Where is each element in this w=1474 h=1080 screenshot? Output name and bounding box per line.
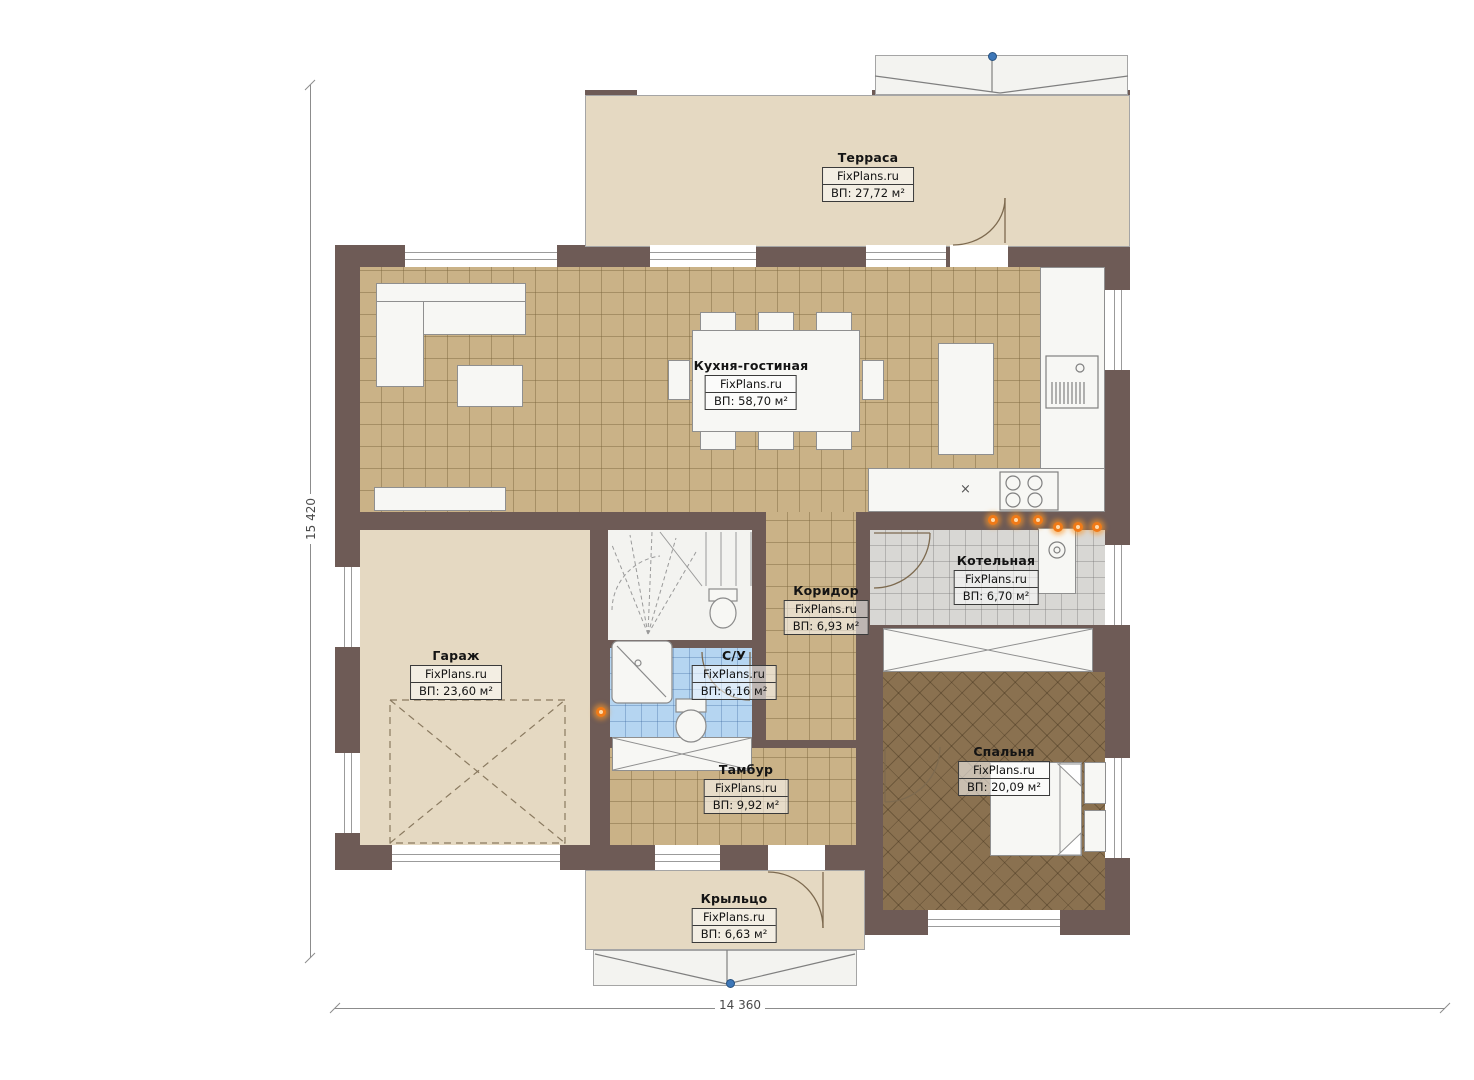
coffee-table [457,365,523,407]
brand-text: FixPlans.ru [823,168,913,185]
brand-text: FixPlans.ru [959,762,1049,779]
chair [816,312,852,332]
room-name: Спальня [958,744,1050,759]
kitchen-counter-bottom [868,468,1105,512]
brand-text: FixPlans.ru [955,571,1038,588]
room-info-box: FixPlans.ru ВП: 6,70 м² [954,570,1039,605]
sink-icon: × [960,482,971,497]
room-info-box: FixPlans.ru ВП: 6,63 м² [692,908,777,943]
room-info-box: FixPlans.ru ВП: 58,70 м² [705,375,797,410]
terrace-door-opening [950,245,1008,267]
chair [758,430,794,450]
room-name: С/У [692,648,777,663]
entrance-door-opening [768,845,825,870]
window [405,245,557,267]
tv-stand [374,487,506,511]
room-info-box: FixPlans.ru ВП: 9,92 м² [704,779,789,814]
room-label-vestibule: Тамбур FixPlans.ru ВП: 9,92 м² [704,762,789,814]
room-info-box: FixPlans.ru ВП: 20,09 м² [958,761,1050,796]
room-label-bathroom: С/У FixPlans.ru ВП: 6,16 м² [692,648,777,700]
brand-text: FixPlans.ru [693,666,776,683]
staircase-floor [608,530,752,640]
room-label-boiler: Котельная FixPlans.ru ВП: 6,70 м² [954,553,1039,605]
room-label-garage: Гараж FixPlans.ru ВП: 23,60 м² [410,648,502,700]
room-area: ВП: 6,93 м² [785,618,868,634]
brand-text: FixPlans.ru [693,909,776,926]
chair [758,312,794,332]
sofa-chaise [376,301,424,387]
window [866,245,946,267]
room-label-kitchen-living: Кухня-гостиная FixPlans.ru ВП: 58,70 м² [694,358,809,410]
chair [700,312,736,332]
room-name: Гараж [410,648,502,663]
room-area: ВП: 27,72 м² [823,185,913,201]
room-label-porch: Крыльцо FixPlans.ru ВП: 6,63 м² [692,891,777,943]
radiator-icon [1011,515,1021,525]
room-area: ВП: 6,16 м² [693,683,776,699]
window [1105,545,1130,625]
terrace-steps [875,55,1128,95]
room-name: Терраса [822,150,914,165]
porch-steps [593,950,857,986]
room-info-box: FixPlans.ru ВП: 23,60 м² [410,665,502,700]
kitchen-island [938,343,994,455]
radiator-icon [596,707,606,717]
radiator-icon [1092,522,1102,532]
dimension-height-label: 15 420 [304,494,318,544]
room-info-box: FixPlans.ru ВП: 6,16 м² [692,665,777,700]
brand-text: FixPlans.ru [705,780,788,797]
sofa-back [376,283,526,303]
room-area: ВП: 58,70 м² [706,393,796,409]
chair [862,360,884,400]
dimension-line-horizontal [335,1008,1445,1009]
brand-text: FixPlans.ru [785,601,868,618]
window [650,245,756,267]
room-label-terrace: Терраса FixPlans.ru ВП: 27,72 м² [822,150,914,202]
radiator-icon [988,515,998,525]
dimension-width-label: 14 360 [715,998,765,1012]
room-area: ВП: 20,09 м² [959,779,1049,795]
room-name: Кухня-гостиная [694,358,809,373]
room-info-box: FixPlans.ru ВП: 27,72 м² [822,167,914,202]
room-name: Котельная [954,553,1039,568]
room-area: ВП: 23,60 м² [411,683,501,699]
radiator-icon [1053,522,1063,532]
dimension-node-icon[interactable] [726,979,735,988]
room-area: ВП: 6,63 м² [693,926,776,942]
room-name: Крыльцо [692,891,777,906]
window [335,753,360,833]
boiler-unit [1038,528,1076,594]
chair [700,430,736,450]
brand-text: FixPlans.ru [706,376,796,393]
window [1105,758,1130,858]
nightstand [1084,762,1106,804]
wardrobe [883,628,1093,672]
room-name: Коридор [784,583,869,598]
room-area: ВП: 9,92 м² [705,797,788,813]
room-name: Тамбур [704,762,789,777]
nightstand [1084,810,1106,852]
floor-plan-canvas: 15 420 14 360 [0,0,1474,1080]
chair [816,430,852,450]
chair [668,360,690,400]
window [928,910,1060,935]
radiator-icon [1073,522,1083,532]
room-label-corridor: Коридор FixPlans.ru ВП: 6,93 м² [784,583,869,635]
garage-door-opening [392,845,560,870]
radiator-icon [1033,515,1043,525]
dimension-node-icon[interactable] [988,52,997,61]
room-label-bedroom: Спальня FixPlans.ru ВП: 20,09 м² [958,744,1050,796]
room-area: ВП: 6,70 м² [955,588,1038,604]
room-info-box: FixPlans.ru ВП: 6,93 м² [784,600,869,635]
brand-text: FixPlans.ru [411,666,501,683]
window [335,567,360,647]
window [1105,290,1130,370]
window [655,845,720,870]
